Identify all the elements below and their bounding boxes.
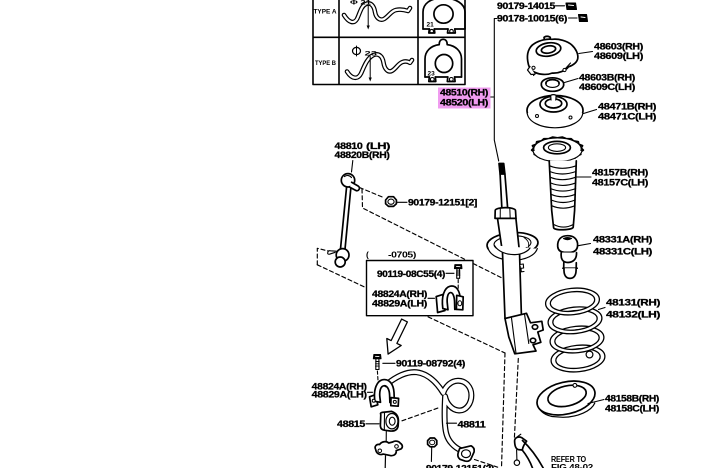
svg-text:23: 23	[365, 51, 378, 58]
svg-text:TYPE B: TYPE B	[315, 60, 336, 67]
svg-text:48331C(LH): 48331C(LH)	[593, 247, 652, 258]
svg-text:(: (	[366, 250, 369, 260]
svg-text:Φ 21: Φ 21	[350, 0, 372, 7]
svg-text:TYPE A: TYPE A	[314, 9, 337, 16]
svg-text:90179-12151(2): 90179-12151(2)	[426, 464, 494, 468]
svg-text:48815: 48815	[337, 419, 366, 430]
svg-text:90179-14015: 90179-14015	[497, 1, 556, 12]
svg-text:48820B(RH): 48820B(RH)	[335, 150, 390, 161]
svg-text:48331A(RH): 48331A(RH)	[593, 235, 652, 246]
svg-text:FIG 48-02: FIG 48-02	[551, 463, 594, 468]
svg-text:48829A(LH): 48829A(LH)	[312, 390, 367, 401]
svg-text:48131(RH): 48131(RH)	[606, 298, 660, 309]
svg-text:90178-10015(6): 90178-10015(6)	[497, 14, 567, 25]
svg-text:48609C(LH): 48609C(LH)	[579, 82, 635, 93]
svg-text:21: 21	[427, 22, 435, 29]
svg-text:48157C(LH): 48157C(LH)	[592, 178, 648, 189]
svg-text:48132(LH): 48132(LH)	[606, 310, 660, 321]
svg-text:48829A(LH): 48829A(LH)	[372, 298, 427, 309]
svg-text:48811: 48811	[458, 419, 487, 430]
svg-text:90179-12151[2]: 90179-12151[2]	[408, 198, 477, 209]
svg-text:90119-08C55(4): 90119-08C55(4)	[377, 269, 445, 280]
svg-text:48471C(LH): 48471C(LH)	[598, 112, 656, 123]
svg-text:48520(LH): 48520(LH)	[440, 98, 488, 109]
svg-text:90119-08792(4): 90119-08792(4)	[396, 359, 465, 370]
svg-text:23: 23	[428, 71, 436, 78]
svg-text:-0705): -0705)	[388, 250, 417, 260]
svg-text:48609(LH): 48609(LH)	[594, 51, 643, 62]
svg-text:48158C(LH): 48158C(LH)	[605, 404, 659, 415]
